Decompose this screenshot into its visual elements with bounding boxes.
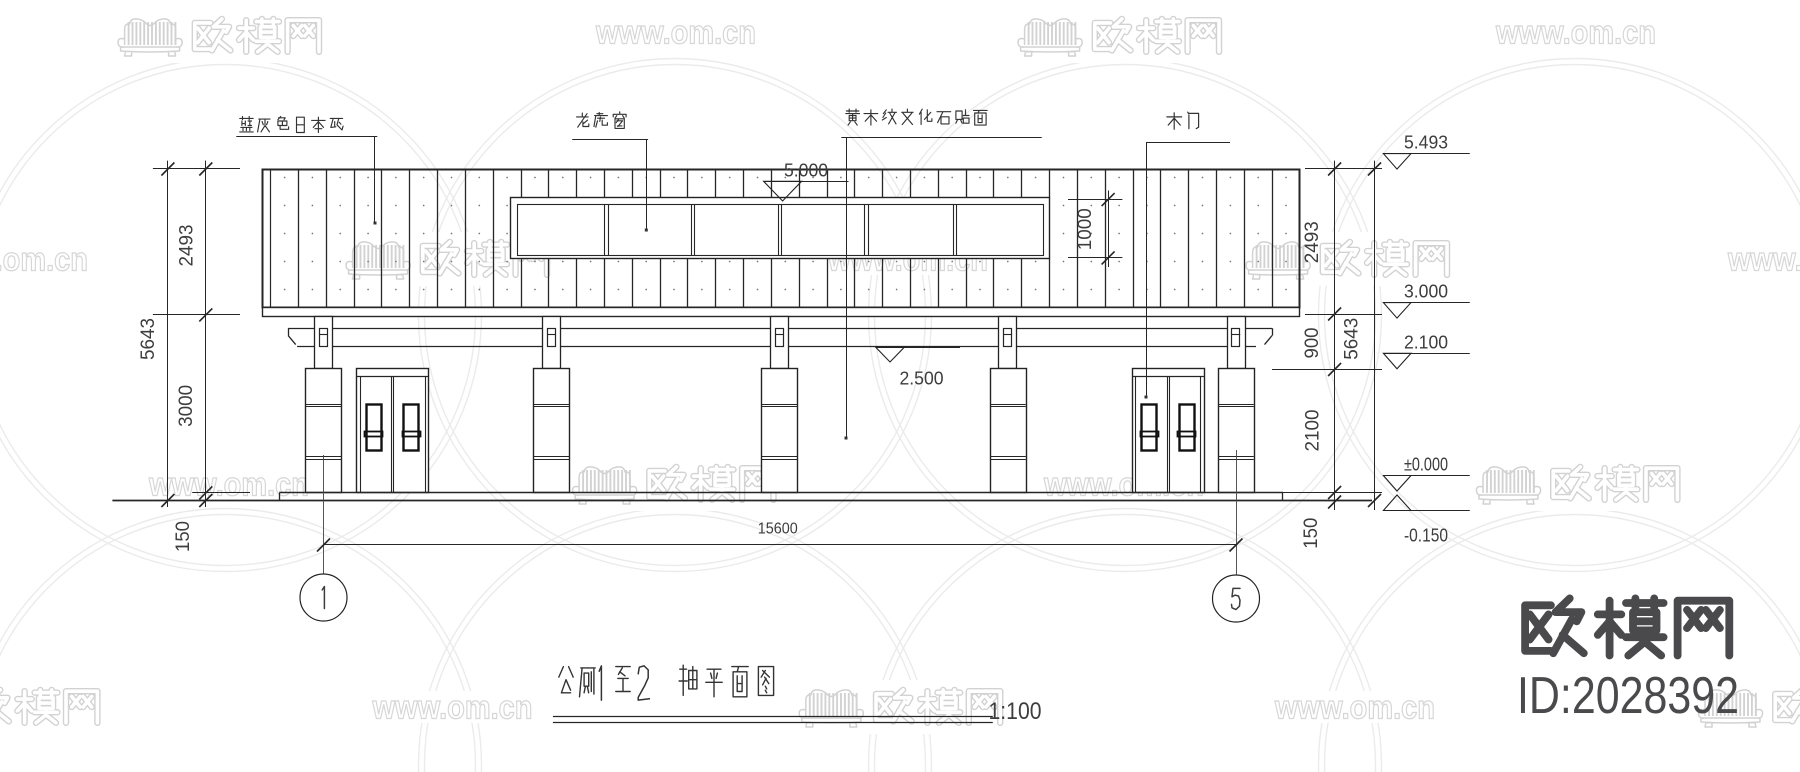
svg-text:5.000: 5.000 <box>784 161 828 181</box>
svg-text:www.om.cn: www.om.cn <box>1727 241 1800 278</box>
svg-text:1:100: 1:100 <box>989 698 1042 725</box>
svg-text:2.100: 2.100 <box>1404 332 1448 352</box>
svg-text:900: 900 <box>1302 328 1323 359</box>
svg-text:www.om.cn: www.om.cn <box>0 241 88 278</box>
svg-text:2493: 2493 <box>1302 221 1323 263</box>
svg-text:5.493: 5.493 <box>1404 133 1448 153</box>
svg-text:15600: 15600 <box>758 521 798 538</box>
svg-text:www.om.cn: www.om.cn <box>1495 14 1656 51</box>
svg-text:www.om.cn: www.om.cn <box>372 689 533 726</box>
svg-text:3000: 3000 <box>176 385 197 427</box>
svg-text:1000: 1000 <box>1075 208 1096 250</box>
svg-text:-0.150: -0.150 <box>1404 526 1448 546</box>
svg-text:www.om.cn: www.om.cn <box>595 14 756 51</box>
svg-text:±0.000: ±0.000 <box>1404 455 1448 475</box>
svg-text:ID:2028392: ID:2028392 <box>1517 667 1739 725</box>
svg-text:150: 150 <box>173 521 194 552</box>
svg-text:www.om.cn: www.om.cn <box>1274 689 1435 726</box>
svg-text:5643: 5643 <box>138 318 159 360</box>
svg-text:3.000: 3.000 <box>1404 282 1448 302</box>
svg-text:150: 150 <box>1301 518 1322 549</box>
svg-text:5643: 5643 <box>1342 318 1363 360</box>
svg-text:2100: 2100 <box>1303 410 1324 452</box>
svg-text:2493: 2493 <box>177 225 198 267</box>
svg-text:2.500: 2.500 <box>900 369 944 389</box>
